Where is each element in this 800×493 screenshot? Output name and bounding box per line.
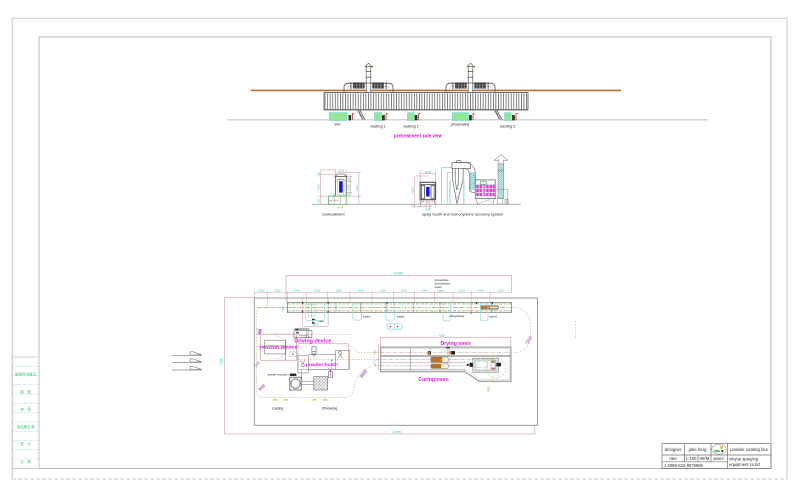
svg-text:powder booth: powder booth — [306, 362, 338, 367]
svg-text:7300: 7300 — [438, 333, 445, 337]
svg-text:1000: 1000 — [379, 289, 386, 293]
svg-text:400: 400 — [317, 198, 321, 203]
svg-text:1008: 1008 — [338, 168, 345, 172]
svg-text:washing 3: washing 3 — [500, 124, 515, 128]
svg-text:pretreatment side view: pretreatment side view — [394, 133, 442, 139]
svg-text:wash1: wash1 — [363, 315, 371, 319]
svg-text:23050: 23050 — [393, 430, 402, 434]
svg-text:2000: 2000 — [314, 289, 321, 293]
svg-text:skin: skin — [334, 123, 340, 127]
svg-text:spray booth and monocyclone re: spray booth and monocyclone recovery sys… — [422, 212, 503, 217]
svg-text:100: 100 — [412, 203, 415, 208]
svg-text:200: 200 — [347, 192, 350, 197]
svg-text:1:100: 1:100 — [686, 456, 698, 461]
svg-text:2200: 2200 — [497, 289, 504, 293]
svg-text:签 字: 签 字 — [20, 441, 31, 446]
svg-text:常规符号登记: 常规符号登记 — [15, 372, 37, 377]
svg-text:jake feng: jake feng — [688, 447, 707, 452]
svg-text:1350: 1350 — [346, 184, 350, 190]
svg-text:日 期: 日 期 — [20, 459, 31, 464]
svg-text:powder coating line: powder coating line — [730, 447, 768, 452]
svg-text:skin: skin — [318, 319, 324, 323]
svg-text:2000: 2000 — [401, 289, 408, 293]
svg-text:3050: 3050 — [335, 289, 342, 293]
svg-text:885837: 885837 — [713, 457, 724, 461]
svg-text:Off-loading: Off-loading — [322, 407, 338, 411]
svg-text:wash2: wash2 — [397, 315, 405, 319]
svg-text:+500: +500 — [437, 289, 444, 293]
svg-text:1500: 1500 — [258, 289, 265, 293]
svg-text:1700: 1700 — [477, 289, 484, 293]
svg-text:Loading: Loading — [272, 407, 284, 411]
svg-text:1700: 1700 — [294, 289, 301, 293]
svg-text:1750: 1750 — [317, 184, 321, 191]
svg-text:wash3: wash3 — [489, 315, 497, 319]
svg-text:1500: 1500 — [459, 289, 466, 293]
svg-text:tension device: tension device — [260, 344, 298, 349]
svg-text:1008: 1008 — [425, 170, 432, 174]
svg-text:2200: 2200 — [274, 289, 281, 293]
svg-text:1 0086-523-8875966: 1 0086-523-8875966 — [664, 463, 704, 468]
svg-text:designer: designer — [665, 447, 682, 452]
svg-text:phosphating: phosphating — [451, 123, 470, 127]
svg-text:powder recovery system: powder recovery system — [268, 372, 298, 376]
svg-text:Curing oven: Curing oven — [418, 377, 448, 383]
svg-text:Drying oven: Drying oven — [441, 341, 471, 347]
svg-text:200: 200 — [317, 172, 321, 177]
svg-text:7150: 7150 — [219, 358, 223, 365]
svg-text:2250: 2250 — [411, 187, 415, 194]
svg-text:rate: rate — [669, 456, 677, 461]
svg-text:washing 1: washing 1 — [370, 124, 385, 128]
svg-text:校 审: 校 审 — [20, 407, 31, 412]
svg-text:2250: 2250 — [355, 185, 359, 192]
svg-text:加绘图名单: 加绘图名单 — [17, 424, 35, 429]
svg-text:phosphating: phosphating — [449, 314, 464, 318]
svg-text:tower: tower — [435, 285, 442, 289]
svg-text:xinyue spraying: xinyue spraying — [729, 456, 759, 461]
svg-text:1500: 1500 — [282, 305, 285, 311]
svg-text:06/M: 06/M — [700, 456, 710, 461]
svg-text:描 图: 描 图 — [20, 389, 31, 394]
svg-text:1443: 1443 — [421, 289, 428, 293]
svg-text:550: 550 — [346, 176, 350, 181]
svg-text:24250: 24250 — [394, 271, 403, 275]
svg-text:1500: 1500 — [313, 323, 319, 327]
svg-text:3000: 3000 — [487, 386, 491, 393]
svg-text:2000: 2000 — [358, 289, 365, 293]
svg-text:equipment co.ltd: equipment co.ltd — [729, 462, 760, 467]
svg-text:washing 2: washing 2 — [403, 124, 418, 128]
svg-text:pretreatment: pretreatment — [322, 211, 345, 216]
